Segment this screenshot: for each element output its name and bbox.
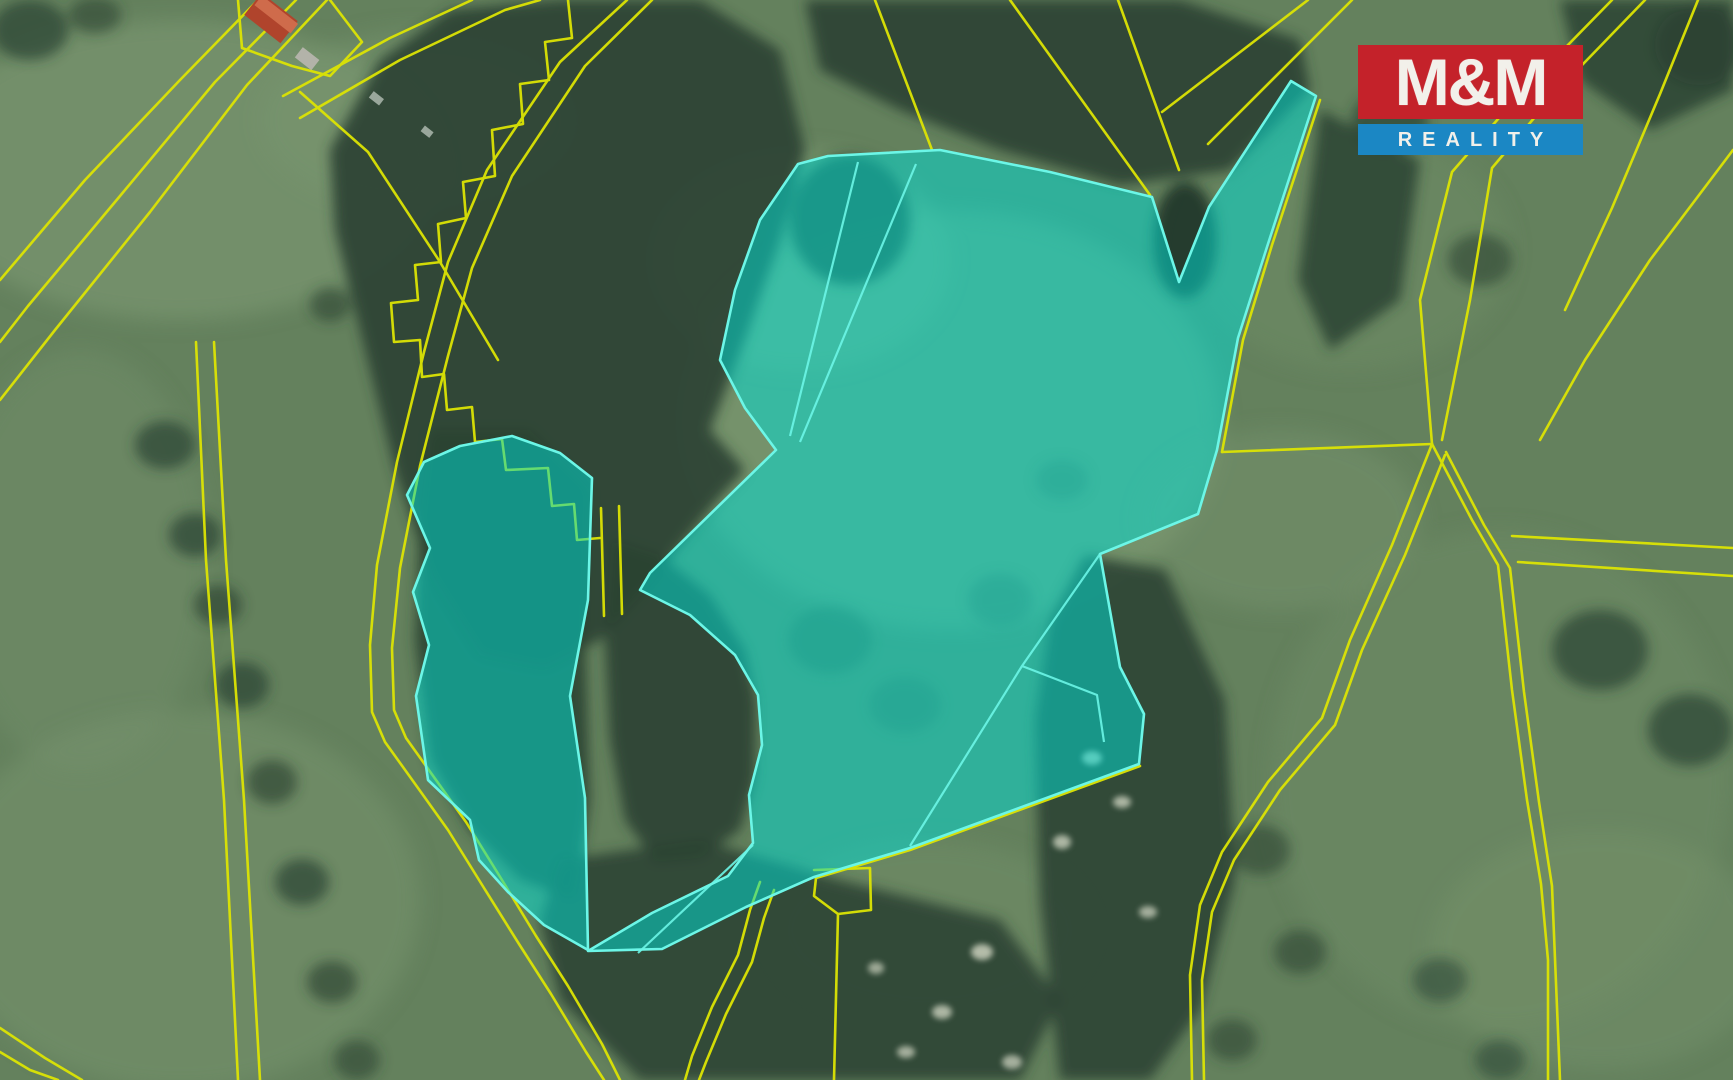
aerial-basemap [0,0,1733,1080]
aerial-map: M&M REALITY [0,0,1733,1080]
logo-subtitle: REALITY [1358,124,1583,155]
logo-title: M&M [1358,45,1583,119]
mm-reality-logo: M&M REALITY [1358,45,1583,155]
